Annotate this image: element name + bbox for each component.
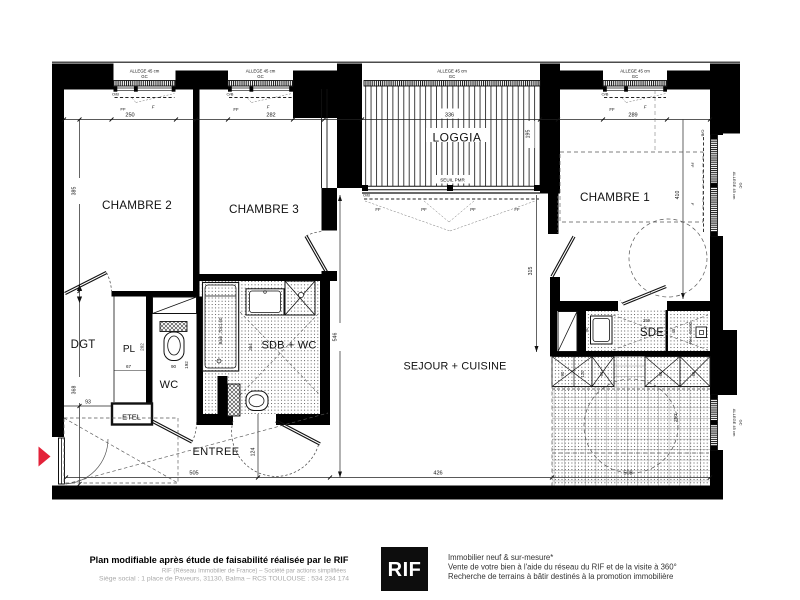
svg-text:GC: GC [449,74,455,79]
svg-text:426: 426 [433,471,442,477]
svg-text:O/B: O/B [112,92,119,97]
svg-text:364: 364 [248,343,253,351]
svg-text:124: 124 [251,448,257,457]
svg-text:FF: FF [233,107,239,112]
svg-text:F: F [267,105,270,110]
svg-text:Vente de votre bien à l'aide d: Vente de votre bien à l'aide du réseau d… [448,563,677,572]
svg-text:250: 250 [673,414,679,422]
svg-text:385: 385 [72,187,78,196]
svg-text:DGT: DGT [71,339,96,351]
svg-text:GC: GC [739,420,744,426]
svg-text:192: 192 [184,361,189,369]
svg-text:259: 259 [643,318,651,323]
svg-text:Siège social : 1 place de Pave: Siège social : 1 place de Paveurs, 31130… [99,576,349,583]
svg-text:SEUIL PMR: SEUIL PMR [440,178,465,183]
svg-text:195: 195 [526,130,532,139]
svg-text:O/B: O/B [602,92,609,97]
svg-text:GC: GC [632,74,638,79]
svg-text:ETEL: ETEL [122,413,141,422]
svg-text:ALLEGE 45 cm: ALLEGE 45 cm [437,68,467,73]
svg-text:GC: GC [141,74,147,79]
svg-text:336: 336 [445,113,454,119]
svg-text:60: 60 [658,371,663,376]
svg-text:O/B: O/B [363,193,370,198]
svg-text:ALLEGE 45 cm: ALLEGE 45 cm [246,68,276,73]
svg-text:Immobilier neuf & sur-mesure*: Immobilier neuf & sur-mesure* [448,553,553,562]
svg-text:90: 90 [171,364,177,369]
svg-text:LOGGIA: LOGGIA [432,131,481,145]
svg-text:315: 315 [528,267,534,276]
svg-text:RIF (Réseau Immobilier de Fran: RIF (Réseau Immobilier de France) – Soci… [162,568,346,575]
svg-text:202: 202 [140,343,145,351]
svg-text:CHAMBRE 1: CHAMBRE 1 [580,191,650,204]
svg-text:505: 505 [189,471,198,477]
svg-text:Rec. 80x80: Rec. 80x80 [688,321,693,344]
svg-text:Plan modifiable après étude de: Plan modifiable après étude de faisabili… [90,555,349,565]
svg-text:SDE: SDE [640,327,664,339]
svg-text:45: 45 [671,328,676,333]
svg-text:O/B: O/B [227,92,234,97]
svg-text:ALLEGE 45 cm: ALLEGE 45 cm [130,68,160,73]
svg-text:PF: PF [421,207,427,212]
svg-text:120: 120 [580,370,585,378]
svg-text:FF: FF [514,207,520,212]
svg-text:Bain .70x1.60: Bain .70x1.60 [218,317,223,344]
svg-text:60: 60 [599,371,604,376]
svg-text:ALLEGE 45 cm: ALLEGE 45 cm [732,172,737,200]
svg-text:FF: FF [375,207,381,212]
svg-text:546: 546 [333,333,339,342]
svg-text:GC: GC [739,183,744,189]
svg-text:368: 368 [72,386,78,395]
svg-text:O/B: O/B [701,130,706,137]
svg-text:PF: PF [470,207,476,212]
svg-text:F: F [152,105,155,110]
svg-text:RIF: RIF [388,559,422,581]
svg-text:GC: GC [257,74,263,79]
svg-text:CHAMBRE 3: CHAMBRE 3 [229,203,299,216]
svg-text:93: 93 [85,400,91,406]
svg-text:CHAMBRE 2: CHAMBRE 2 [102,199,172,212]
svg-text:282: 282 [266,113,275,119]
svg-text:90: 90 [560,371,565,376]
svg-text:508: 508 [623,471,632,477]
svg-text:WC: WC [160,379,179,391]
svg-text:ALLEGE 45 cm: ALLEGE 45 cm [620,68,650,73]
svg-text:60: 60 [691,371,696,376]
svg-text:SDB + WC: SDB + WC [261,340,316,352]
svg-text:FF: FF [609,107,615,112]
svg-text:410: 410 [675,191,681,200]
svg-text:90: 90 [584,327,589,332]
svg-text:289: 289 [628,113,637,119]
svg-text:SEJOUR + CUISINE: SEJOUR + CUISINE [403,361,506,373]
svg-text:FF: FF [690,163,695,168]
svg-text:Recherche de terrains à bâtir: Recherche de terrains à bâtir destinés à… [448,572,673,581]
svg-text:ALLEGE 45 cm: ALLEGE 45 cm [732,409,737,437]
svg-text:F: F [644,105,647,110]
svg-text:PL: PL [123,344,136,355]
svg-text:67: 67 [126,364,132,369]
svg-text:250: 250 [125,113,134,119]
